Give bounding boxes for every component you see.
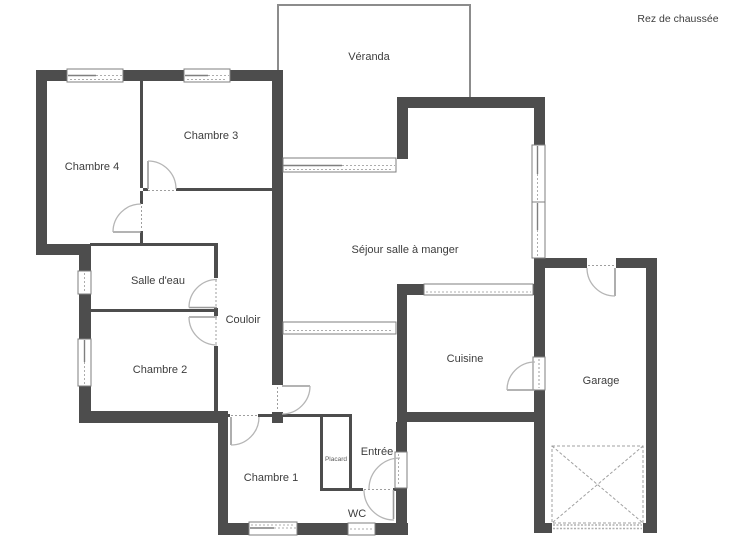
room-label-couloir: Couloir: [226, 314, 261, 326]
room-label-chambre1: Chambre 1: [244, 472, 298, 484]
window: [184, 69, 230, 82]
door-chambre1: [231, 416, 259, 446]
entry-glazed-door: [395, 452, 407, 488]
door-chambre2: [189, 317, 217, 345]
room-label-salle-deau: Salle d'eau: [131, 275, 185, 287]
window-bay-sejour-veranda: [283, 158, 396, 172]
window: [249, 522, 297, 535]
walls-layer: [36, 70, 657, 535]
room-label-wc: WC: [348, 508, 366, 520]
window: [348, 523, 375, 535]
window: [78, 339, 91, 386]
door-salle-deau: [189, 280, 217, 308]
room-label-chambre4: Chambre 4: [65, 161, 119, 173]
door-chambre3: [148, 161, 176, 191]
door-garage-exterior: [587, 266, 615, 297]
windows-layer: [67, 69, 545, 535]
room-label-garage: Garage: [583, 375, 620, 387]
room-label-cuisine: Cuisine: [447, 353, 484, 365]
window: [67, 69, 123, 82]
floor-plan-canvas: Rez de chaussée Véranda Chambre 3 Chambr…: [0, 0, 745, 540]
room-label-veranda: Véranda: [348, 51, 390, 63]
window: [78, 271, 91, 294]
room-label-chambre3: Chambre 3: [184, 130, 238, 142]
floor-plan-page: Rez de chaussée Véranda Chambre 3 Chambr…: [0, 0, 745, 540]
room-label-entree: Entrée: [361, 446, 393, 458]
door-chambre4: [113, 204, 142, 232]
room-label-sejour: Séjour salle à manger: [351, 244, 458, 256]
floor-title: Rez de chaussée: [637, 13, 718, 25]
opening-sejour-hall: [283, 322, 396, 334]
opening-sejour-cuisine: [424, 284, 533, 295]
window: [532, 145, 545, 202]
window: [532, 202, 545, 258]
room-label-placard: Placard: [325, 456, 347, 463]
garage-storage-area: [552, 446, 643, 529]
room-label-chambre2: Chambre 2: [133, 364, 187, 376]
door-wc: [364, 490, 394, 521]
